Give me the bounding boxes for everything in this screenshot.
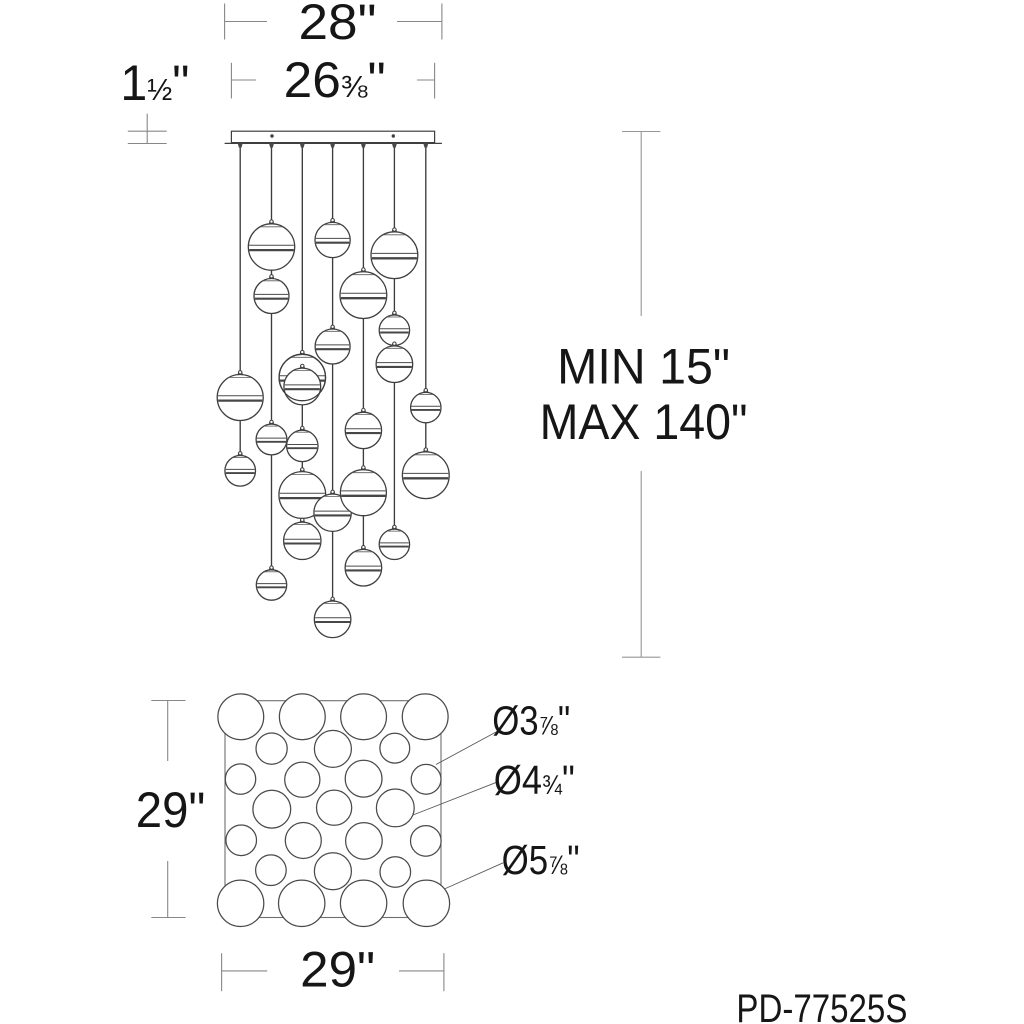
svg-text:26⅜": 26⅜" [284, 52, 386, 108]
svg-text:28": 28" [299, 0, 377, 50]
svg-text:PD-77525S: PD-77525S [736, 987, 907, 1024]
svg-text:Ø3⅞": Ø3⅞" [492, 698, 570, 744]
svg-text:MAX 140": MAX 140" [540, 394, 748, 450]
svg-text:MIN 15": MIN 15" [557, 339, 730, 395]
svg-text:1½": 1½" [120, 55, 189, 111]
svg-text:Ø4¾": Ø4¾" [494, 757, 575, 803]
svg-text:Ø5⅞": Ø5⅞" [502, 837, 580, 883]
svg-text:29": 29" [300, 942, 375, 998]
svg-text:29": 29" [136, 782, 206, 838]
